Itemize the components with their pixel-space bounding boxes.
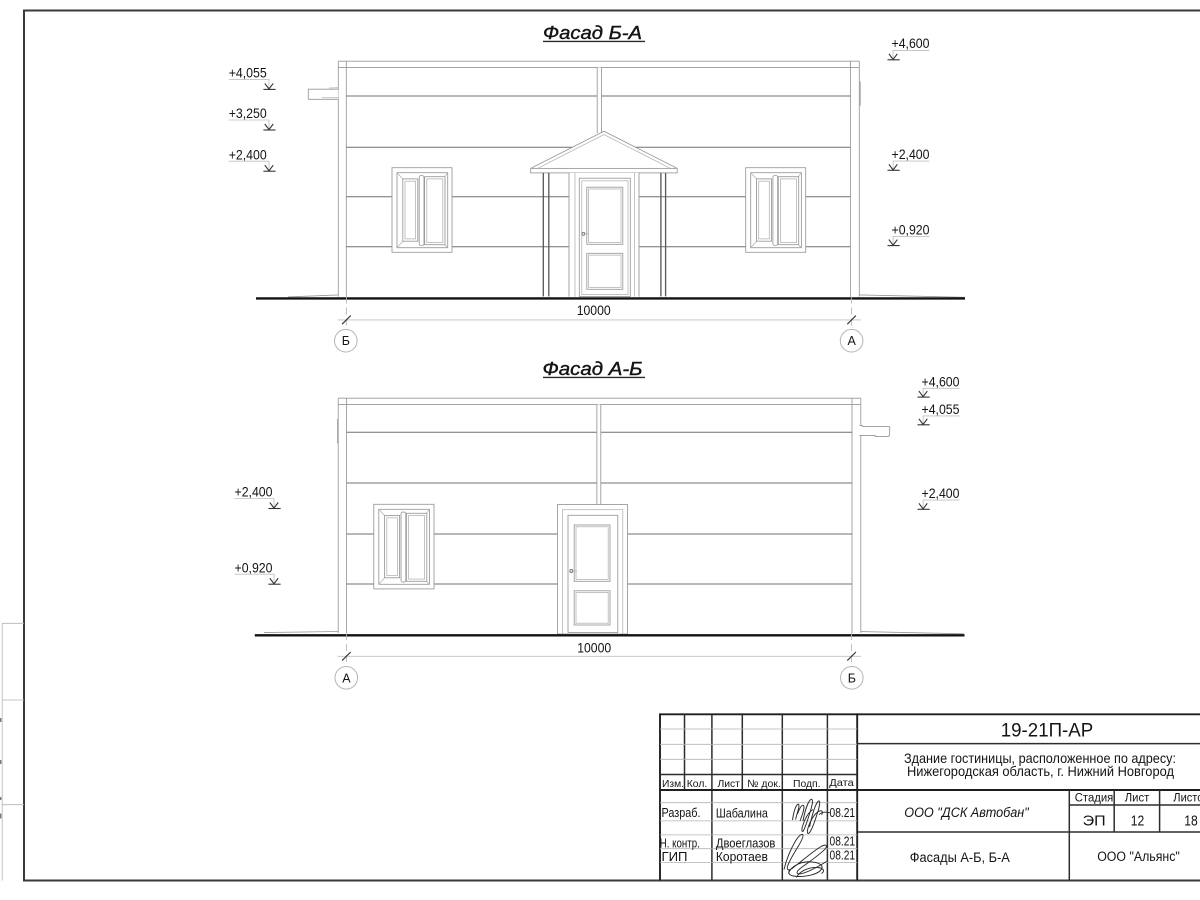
svg-text:08.21: 08.21 xyxy=(830,806,856,820)
svg-text:Изм.: Изм. xyxy=(662,778,684,790)
svg-text:+4,600: +4,600 xyxy=(922,373,960,389)
svg-text:Стадия: Стадия xyxy=(1075,792,1114,804)
svg-text:19-21П-АР: 19-21П-АР xyxy=(1001,719,1094,741)
svg-text:Лист: Лист xyxy=(717,778,740,790)
svg-text:Двоеглазов: Двоеглазов xyxy=(716,837,776,851)
svg-text:№ док.: № док. xyxy=(747,778,781,790)
svg-text:Коротаев: Коротаев xyxy=(716,850,768,864)
svg-text:Шабалина: Шабалина xyxy=(716,807,768,821)
svg-text:Фасад А-Б: Фасад А-Б xyxy=(543,359,643,379)
svg-text:Дата: Дата xyxy=(829,777,854,789)
svg-text:Б: Б xyxy=(342,334,350,348)
svg-text:+2,400: +2,400 xyxy=(922,485,960,501)
svg-text:10000: 10000 xyxy=(577,639,611,655)
svg-text:Б: Б xyxy=(848,671,856,685)
svg-text:Н. контр.: Н. контр. xyxy=(660,837,700,851)
svg-text:18: 18 xyxy=(1184,812,1198,829)
svg-text:Листов: Листов xyxy=(1173,792,1200,804)
svg-text:Фасады А-Б, Б-А: Фасады А-Б, Б-А xyxy=(910,850,1010,865)
svg-text:+2,400: +2,400 xyxy=(235,484,273,500)
svg-text:+3,250: +3,250 xyxy=(229,105,267,121)
svg-text:+4,055: +4,055 xyxy=(229,65,267,81)
svg-text:ООО "Альянс": ООО "Альянс" xyxy=(1097,849,1180,864)
svg-text:12: 12 xyxy=(1131,812,1145,829)
svg-text:ООО "ДСК Автобан": ООО "ДСК Автобан" xyxy=(904,805,1030,820)
svg-text:Фасад Б-А: Фасад Б-А xyxy=(543,23,642,43)
svg-text:Лист: Лист xyxy=(1125,792,1150,804)
svg-text:А: А xyxy=(342,671,351,685)
svg-text:Кол.: Кол. xyxy=(687,778,708,790)
svg-text:10000: 10000 xyxy=(577,302,611,318)
svg-text:+4,055: +4,055 xyxy=(922,401,960,417)
svg-text:+4,600: +4,600 xyxy=(892,35,930,51)
svg-text:Подп.: Подп. xyxy=(793,778,821,790)
svg-text:Разраб.: Разраб. xyxy=(662,806,701,820)
svg-text:Нижегородская область, г. Нижн: Нижегородская область, г. Нижний Новгоро… xyxy=(907,764,1174,779)
svg-text:ГИП: ГИП xyxy=(662,850,688,864)
svg-text:+0,920: +0,920 xyxy=(892,222,930,238)
svg-text:+0,920: +0,920 xyxy=(235,559,273,575)
svg-text:08.21: 08.21 xyxy=(830,848,856,862)
svg-text:08.21: 08.21 xyxy=(830,835,856,849)
svg-text:+2,400: +2,400 xyxy=(892,146,930,162)
svg-text:+2,400: +2,400 xyxy=(229,146,267,162)
svg-text:ЭП: ЭП xyxy=(1083,812,1106,829)
svg-text:А: А xyxy=(848,334,857,348)
